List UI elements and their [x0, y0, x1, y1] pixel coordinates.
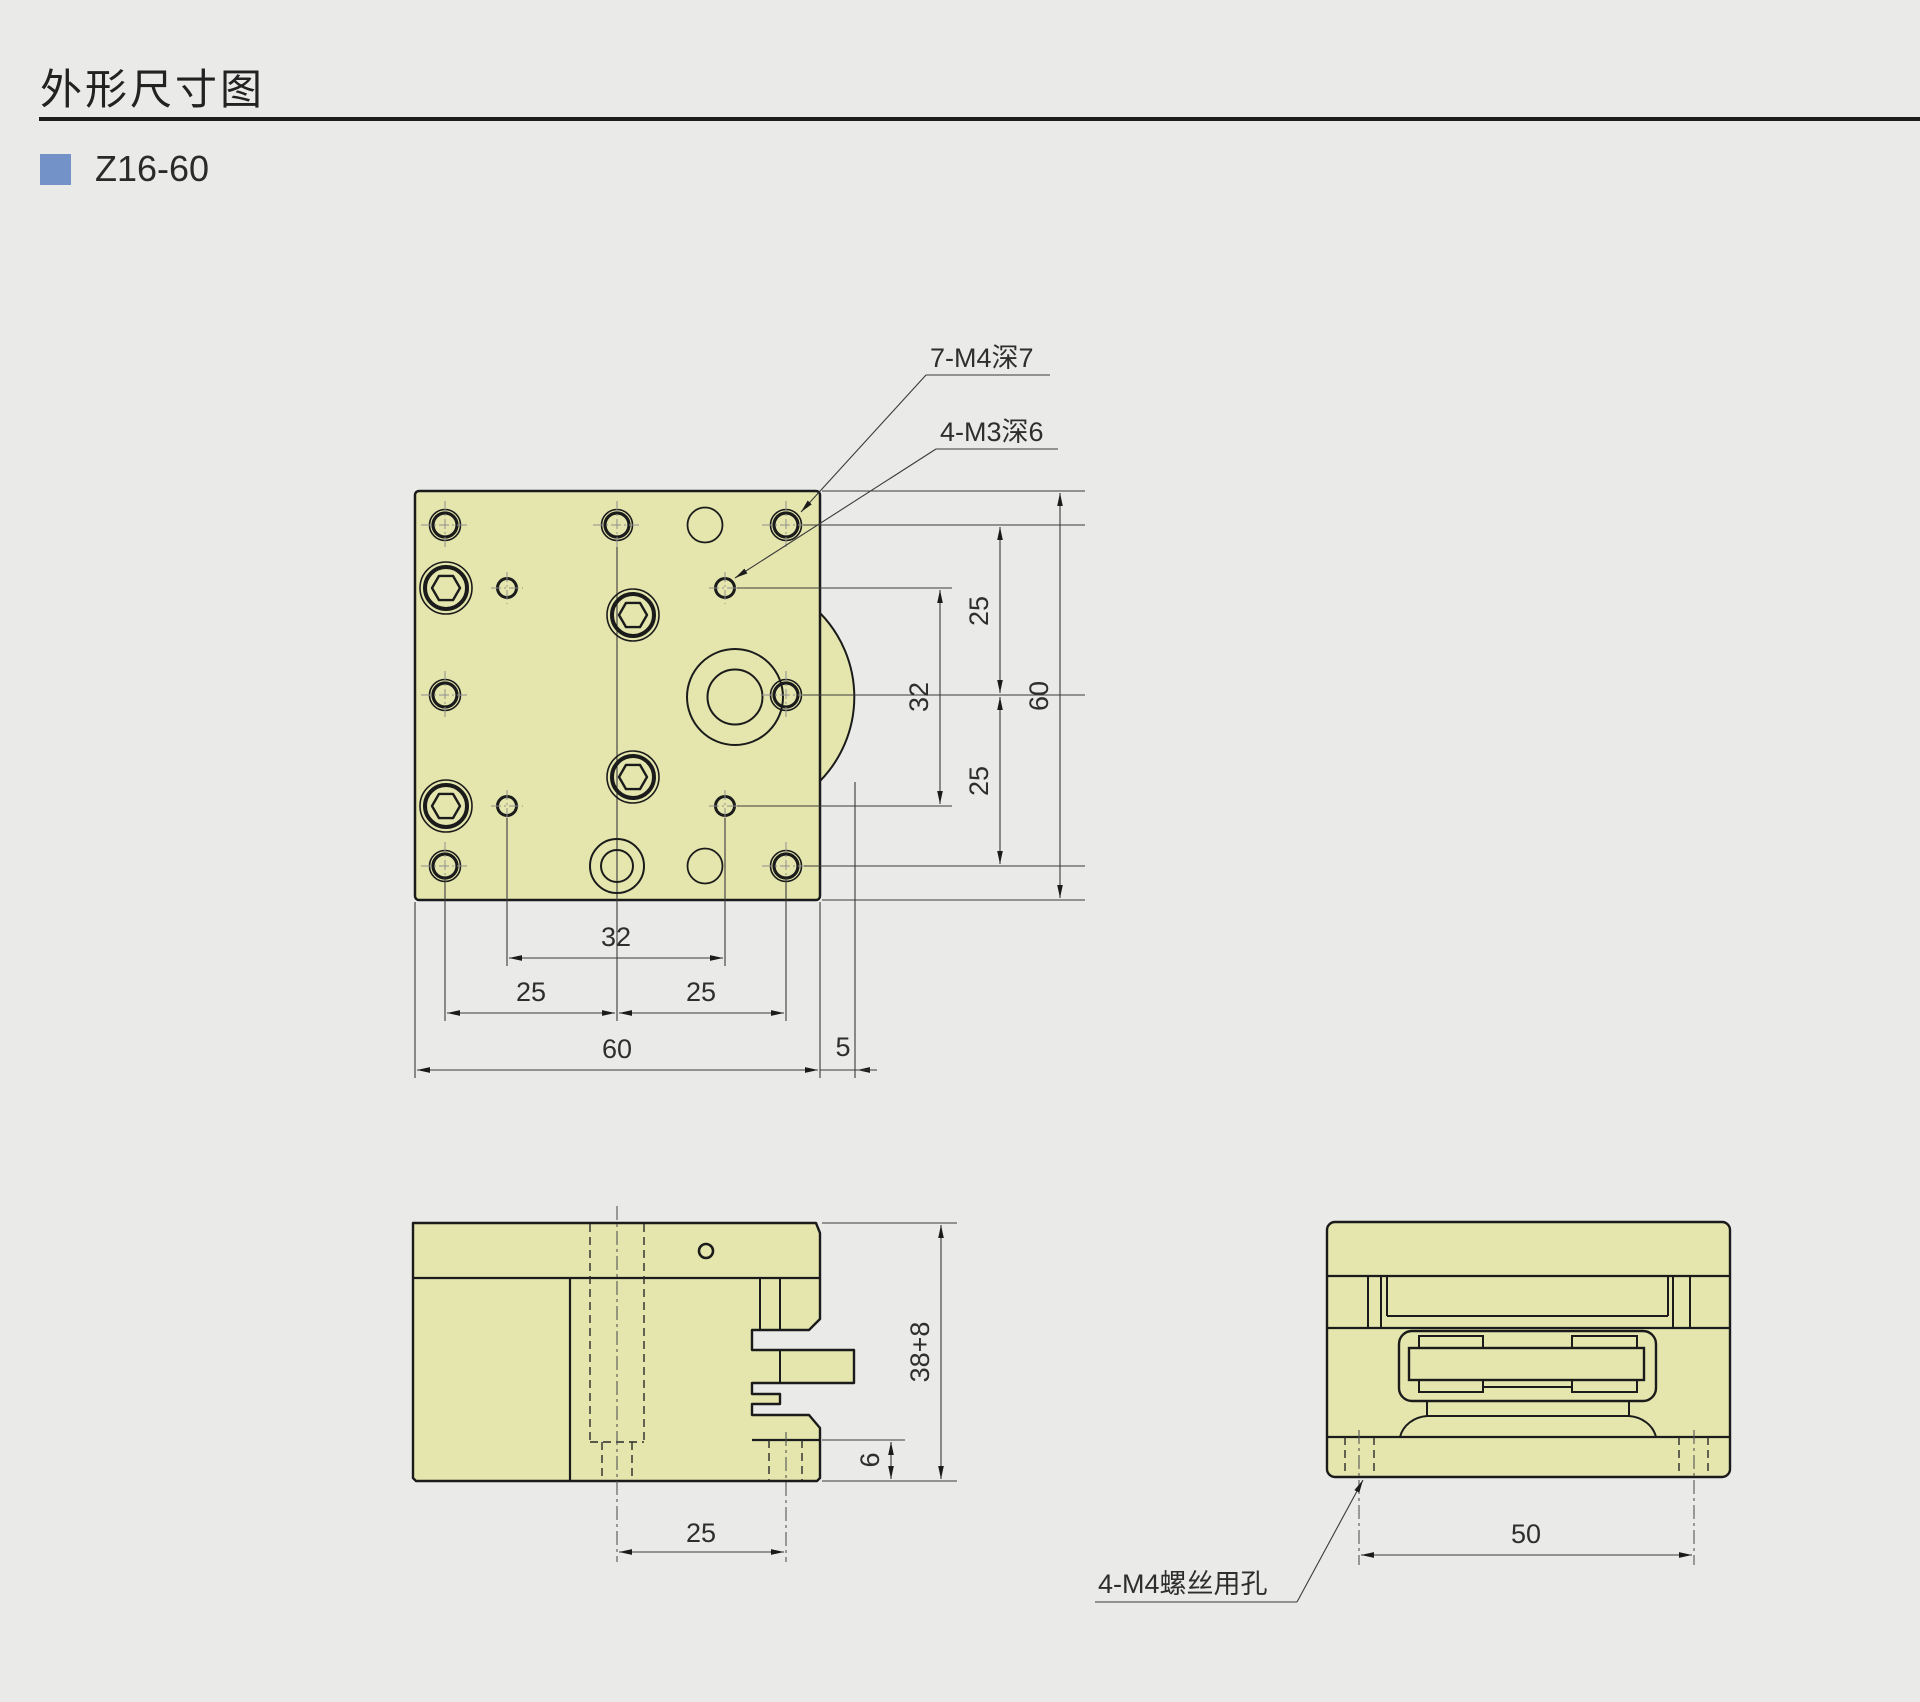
dim-right-25-top: 25 [964, 596, 994, 626]
dim-side-50: 50 [1511, 1519, 1541, 1549]
callout-m4-clearance-label: 4-M4螺丝用孔 [1098, 1569, 1268, 1599]
dim-bottom-25-left: 25 [516, 977, 546, 1007]
dimension-drawing: 25 32 25 60 32 25 25 60 5 7-M4深7 [0, 0, 1920, 1702]
side-dimensions: 50 [1361, 1519, 1692, 1555]
page: { "header": { "title": "外形尺寸图", "model":… [0, 0, 1920, 1702]
dim-front-height: 38+8 [905, 1322, 935, 1383]
callout-m4-label: 7-M4深7 [930, 343, 1034, 373]
dim-front-6: 6 [855, 1452, 885, 1467]
callout-m3-label: 4-M3深6 [940, 417, 1044, 447]
side-body [1327, 1222, 1730, 1477]
dim-bottom-5: 5 [835, 1032, 850, 1062]
side-view: 50 4-M4螺丝用孔 [1095, 1222, 1730, 1602]
dim-bottom-60: 60 [602, 1034, 632, 1064]
dim-front-25: 25 [686, 1518, 716, 1548]
dim-right-25-bottom: 25 [964, 766, 994, 796]
top-view: 25 32 25 60 32 25 25 60 5 7-M4深7 [415, 343, 1085, 1078]
front-view: 6 38+8 25 [413, 1206, 957, 1562]
top-view-bottom-dimensions: 32 25 25 60 5 [417, 922, 877, 1070]
dim-right-60: 60 [1024, 681, 1054, 711]
dim-right-32: 32 [904, 682, 934, 712]
callout-m4-clearance: 4-M4螺丝用孔 [1095, 1480, 1363, 1602]
dim-bottom-25-right: 25 [686, 977, 716, 1007]
knob-bulge [820, 613, 854, 781]
dim-bottom-32: 32 [601, 922, 631, 952]
